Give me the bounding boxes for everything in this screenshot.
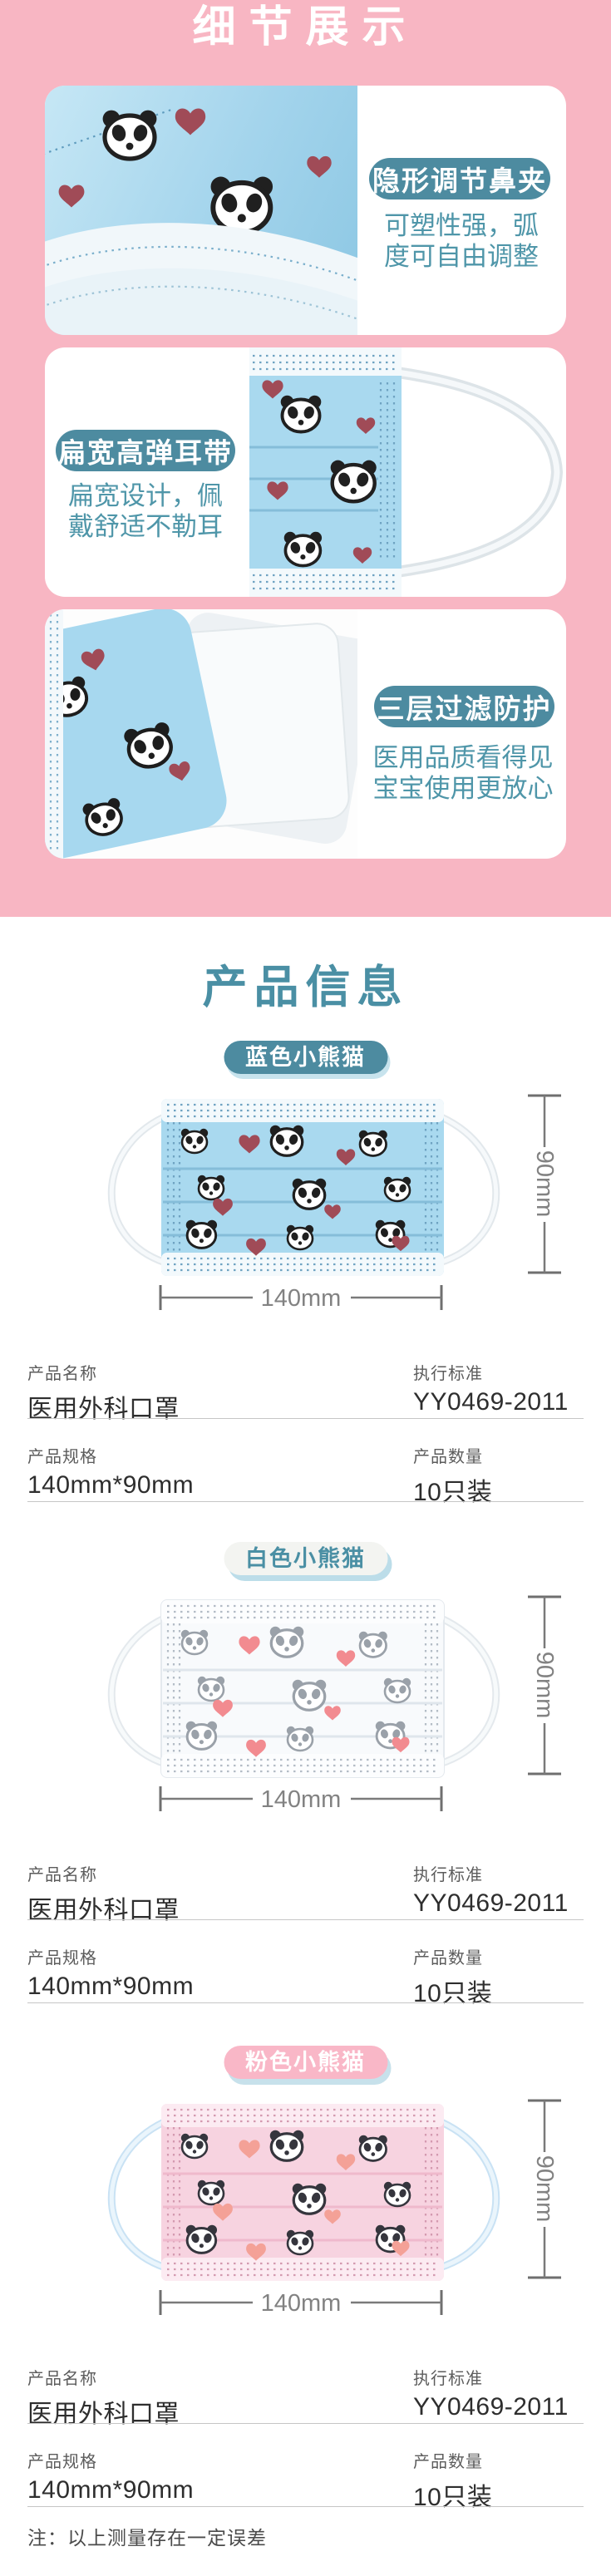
spec-table-white: 产品名称 医用外科口罩 执行标准 YY0469-2011 产品规格 140mm*…: [27, 1861, 584, 2004]
mask-figure-blue: 90mm 140mm: [0, 1089, 611, 1330]
panda-icon: [384, 2182, 411, 2206]
width-dimension-label: 140mm: [261, 1786, 342, 1813]
spec-standard-label: 执行标准: [413, 1360, 611, 1384]
table-divider: [27, 2002, 584, 2003]
ear-band-photo: [249, 347, 566, 597]
spec-standard-value: YY0469-2011: [413, 1889, 611, 1918]
panda-icon: [359, 1130, 387, 1156]
product-detail-page: 细节展示: [0, 0, 611, 2576]
panda-icon: [181, 2134, 208, 2158]
product-variant-pink: 粉色小熊猫: [0, 2046, 611, 2508]
height-dimension: 90mm: [528, 1096, 561, 1273]
panda-icon: [359, 2135, 387, 2161]
spec-table-pink: 产品名称 医用外科口罩 执行标准 YY0469-2011 产品规格 140mm*…: [27, 2365, 584, 2508]
spec-standard-value: YY0469-2011: [413, 1388, 611, 1416]
spec-size-label: 产品规格: [27, 1944, 293, 1968]
spec-qty-label: 产品数量: [413, 1443, 611, 1467]
panda-icon: [198, 1677, 224, 1701]
ear-loop: [397, 372, 557, 572]
mask-figure-white: 90mm 140mm: [0, 1590, 611, 1831]
detail-card-ear-band: 扁宽高弹耳带 扁宽设计，佩 戴舒适不勒耳: [45, 347, 566, 597]
spec-size-label: 产品规格: [27, 2448, 293, 2472]
height-dimension: 90mm: [528, 2101, 561, 2278]
spec-qty-label: 产品数量: [413, 1944, 611, 1968]
spec-qty-value: 10只装: [413, 1973, 611, 2009]
panda-icon: [186, 2225, 217, 2253]
detail-card-three-layers: 三层过滤防护 医用品质看得见 宝宝使用更放心: [45, 609, 566, 859]
feature-badge-ear-band: 扁宽高弹耳带: [56, 430, 235, 471]
panda-icon: [270, 1125, 304, 1156]
three-layer-photo: [45, 609, 357, 859]
feature-desc-nose-clip: 可塑性强，弧 度可自由调整: [357, 210, 565, 272]
mask-edge: [45, 609, 63, 859]
spec-name-value: 医用外科口罩: [27, 1388, 293, 1425]
spec-size-label: 产品规格: [27, 1443, 293, 1467]
panda-icon: [293, 1179, 327, 1209]
table-divider: [27, 1418, 584, 1419]
panda-icon: [186, 1721, 217, 1750]
panda-icon: [293, 1680, 327, 1711]
mask-figure-pink: 90mm 140mm: [0, 2094, 611, 2335]
width-dimension: 140mm: [160, 1285, 441, 1312]
panda-icon: [186, 1220, 217, 1249]
mask-closeup-photo: [45, 86, 357, 335]
panda-icon: [384, 1177, 411, 1201]
panda-icon: [270, 1627, 304, 1657]
spec-standard-label: 执行标准: [413, 2365, 611, 2389]
spec-qty-value: 10只装: [413, 2476, 611, 2513]
detail-section-title: 细节展示: [0, 0, 611, 54]
feature-badge-nose-clip: 隐形调节鼻夹: [369, 158, 550, 199]
panda-icon: [384, 1678, 411, 1702]
spec-qty-label: 产品数量: [413, 2448, 611, 2472]
spec-standard-value: YY0469-2011: [413, 2393, 611, 2421]
variant-badge-blue: 蓝色小熊猫: [224, 1041, 387, 1074]
panda-icon: [270, 2130, 304, 2161]
spec-name-label: 产品名称: [27, 1861, 293, 1885]
width-dimension-label: 140mm: [261, 2290, 342, 2317]
product-variant-blue: 蓝色小熊猫: [0, 1041, 611, 1503]
panda-icon: [293, 2184, 327, 2214]
spec-size-value: 140mm*90mm: [27, 1471, 293, 1500]
panda-icon: [284, 532, 322, 566]
spec-name-value: 医用外科口罩: [27, 1889, 293, 1926]
heart-icon: [175, 109, 205, 135]
spec-table-blue: 产品名称 医用外科口罩 执行标准 YY0469-2011 产品规格 140mm*…: [27, 1360, 584, 1503]
height-dimension-label: 90mm: [531, 1652, 558, 1719]
panda-icon: [281, 396, 322, 432]
width-dimension: 140mm: [160, 2290, 441, 2317]
height-dimension: 90mm: [528, 1597, 561, 1774]
spec-name-label: 产品名称: [27, 2365, 293, 2389]
panda-icon: [198, 2180, 224, 2204]
spec-name-value: 医用外科口罩: [27, 2393, 293, 2430]
panda-icon: [181, 1630, 208, 1654]
heart-icon-group: [59, 109, 332, 208]
panda-icon: [287, 2230, 313, 2254]
table-divider: [27, 1919, 584, 1920]
feature-desc-ear-band: 扁宽设计，佩 戴舒适不勒耳: [45, 480, 246, 542]
table-divider: [27, 1501, 584, 1502]
heart-icon: [59, 185, 85, 207]
panda-icon: [287, 1225, 313, 1249]
width-dimension: 140mm: [160, 1786, 441, 1813]
variant-badge-pink: 粉色小熊猫: [224, 2046, 387, 2079]
spec-size-value: 140mm*90mm: [27, 2476, 293, 2505]
panda-icon: [359, 1632, 387, 1657]
heart-icon: [307, 156, 331, 178]
panda-icon: [103, 111, 157, 159]
detail-card-nose-clip: 隐形调节鼻夹 可塑性强，弧 度可自由调整: [45, 86, 566, 335]
height-dimension-label: 90mm: [531, 2155, 558, 2223]
panda-icon: [331, 461, 377, 502]
spec-qty-value: 10只装: [413, 1471, 611, 1508]
width-dimension-label: 140mm: [261, 1285, 342, 1312]
measurement-note: 注：以上测量存在一定误差: [27, 2522, 267, 2550]
variant-badge-white: 白色小熊猫: [224, 1542, 387, 1575]
table-divider: [27, 2423, 584, 2424]
spec-name-label: 产品名称: [27, 1360, 293, 1384]
height-dimension-label: 90mm: [531, 1150, 558, 1218]
feature-desc-three-layers: 医用品质看得见 宝宝使用更放心: [360, 742, 566, 804]
spec-size-value: 140mm*90mm: [27, 1973, 293, 2001]
panda-icon: [211, 177, 273, 233]
spec-standard-label: 执行标准: [413, 1861, 611, 1885]
product-variant-white: 白色小熊猫: [0, 1542, 611, 2004]
feature-badge-three-layers: 三层过滤防护: [374, 686, 554, 727]
panda-icon: [181, 1129, 208, 1153]
panda-icon: [287, 1726, 313, 1751]
detail-section: 细节展示: [0, 0, 611, 917]
table-divider: [27, 2506, 584, 2507]
product-info-title: 产品信息: [0, 950, 611, 1016]
panda-icon: [198, 1175, 224, 1199]
